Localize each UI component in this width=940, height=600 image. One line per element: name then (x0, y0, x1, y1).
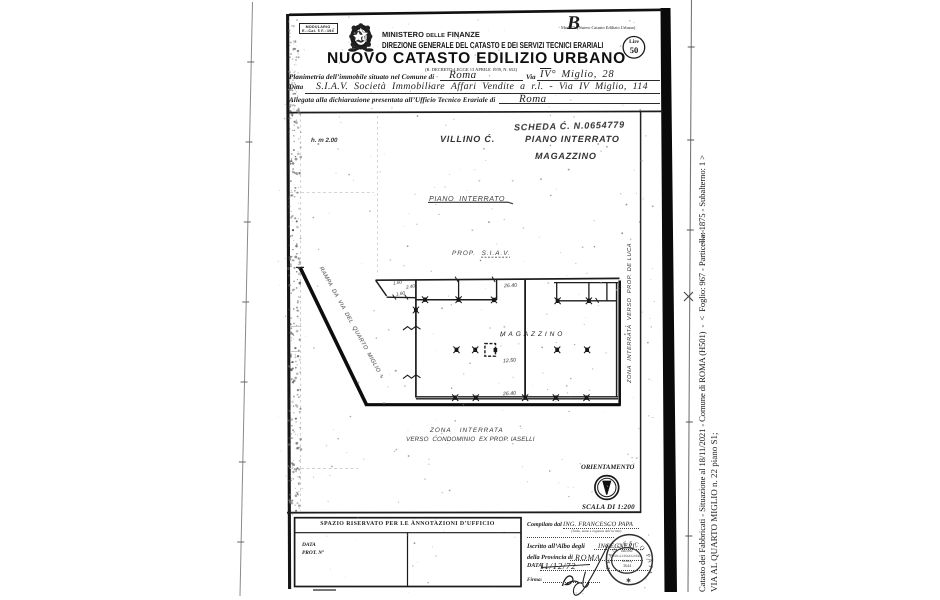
svg-text:✱: ✱ (626, 578, 631, 585)
